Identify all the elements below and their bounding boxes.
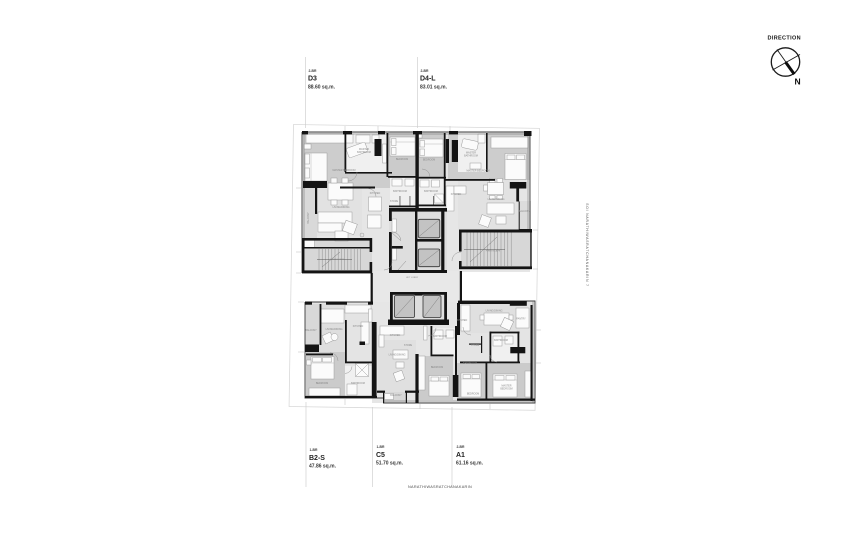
svg-text:BALCONY: BALCONY (305, 329, 317, 332)
svg-text:PANTRY: PANTRY (516, 318, 526, 321)
svg-text:LIVING/DINING: LIVING/DINING (488, 198, 505, 201)
svg-text:BATHROOM: BATHROOM (464, 155, 478, 158)
svg-text:BATHROOM: BATHROOM (357, 151, 371, 154)
svg-text:D3: D3 (308, 76, 317, 83)
svg-text:FIRE ESCAPE: FIRE ESCAPE (330, 258, 345, 261)
svg-text:BATHROOM: BATHROOM (424, 190, 438, 193)
svg-text:BEDROOM: BEDROOM (316, 382, 328, 385)
svg-text:KITCHEN: KITCHEN (457, 319, 468, 322)
svg-text:STORE: STORE (390, 200, 399, 203)
svg-text:BATHROOM: BATHROOM (463, 362, 477, 365)
svg-text:NARATHIWASRATCHANAKARIN: NARATHIWASRATCHANAKARIN (408, 485, 472, 489)
svg-text:1-BR: 1-BR (377, 445, 385, 449)
svg-text:BALCONY: BALCONY (390, 394, 402, 397)
svg-text:KITCHEN: KITCHEN (451, 193, 462, 196)
svg-text:88.60 sq.m.: 88.60 sq.m. (308, 85, 336, 91)
svg-text:B2-S: B2-S (309, 455, 325, 462)
svg-text:BATHROOM: BATHROOM (433, 335, 447, 338)
svg-text:2-BR: 2-BR (309, 69, 317, 73)
svg-text:LIFT LOBBY: LIFT LOBBY (406, 277, 419, 279)
svg-text:1-BR: 1-BR (310, 448, 318, 452)
svg-text:LIVING/DINING: LIVING/DINING (333, 206, 350, 209)
svg-text:LIVING/DINING: LIVING/DINING (326, 328, 343, 331)
svg-text:BALCONY: BALCONY (519, 210, 531, 213)
svg-text:BEDROOM: BEDROOM (500, 388, 512, 391)
svg-text:A1: A1 (456, 452, 465, 459)
svg-text:BALCONY: BALCONY (307, 212, 310, 224)
svg-text:KITCHEN: KITCHEN (370, 192, 381, 195)
svg-text:2-BR: 2-BR (421, 69, 429, 73)
svg-text:KITCHEN: KITCHEN (353, 325, 364, 328)
svg-text:STORE: STORE (404, 344, 413, 347)
svg-text:BEDROOM: BEDROOM (396, 158, 408, 161)
svg-text:FIRE ESCAPE: FIRE ESCAPE (486, 250, 501, 253)
svg-text:LIVING/DINING: LIVING/DINING (389, 354, 406, 357)
svg-text:MASTER BEDROOM: MASTER BEDROOM (467, 170, 490, 173)
svg-text:BATHROOM: BATHROOM (494, 339, 508, 342)
svg-text:DIRECTION: DIRECTION (768, 36, 801, 42)
svg-text:BATHROOM: BATHROOM (393, 190, 407, 193)
svg-text:BEDROOM: BEDROOM (467, 393, 479, 396)
svg-text:STORE: STORE (471, 344, 480, 347)
svg-text:LIVING/DINING: LIVING/DINING (486, 310, 503, 313)
svg-text:83.01 sq.m.: 83.01 sq.m. (420, 85, 448, 91)
svg-text:KITCHEN: KITCHEN (390, 334, 401, 337)
svg-text:D4-L: D4-L (420, 76, 436, 83)
svg-text:BATHROOM: BATHROOM (351, 382, 365, 385)
svg-text:N: N (795, 77, 801, 87)
svg-text:MASTER BEDROOM: MASTER BEDROOM (333, 169, 356, 172)
svg-text:61.16 sq.m.: 61.16 sq.m. (456, 461, 484, 467)
svg-text:2-BR: 2-BR (457, 445, 465, 449)
svg-text:SOI NARATHIWASRATCHANAKARIN 7: SOI NARATHIWASRATCHANAKARIN 7 (585, 203, 589, 287)
svg-text:BEDROOM: BEDROOM (431, 366, 443, 369)
svg-text:47.86 sq.m.: 47.86 sq.m. (309, 464, 337, 470)
svg-text:C5: C5 (376, 452, 385, 459)
svg-text:51.70 sq.m.: 51.70 sq.m. (376, 461, 404, 467)
svg-text:BEDROOM: BEDROOM (423, 159, 435, 162)
